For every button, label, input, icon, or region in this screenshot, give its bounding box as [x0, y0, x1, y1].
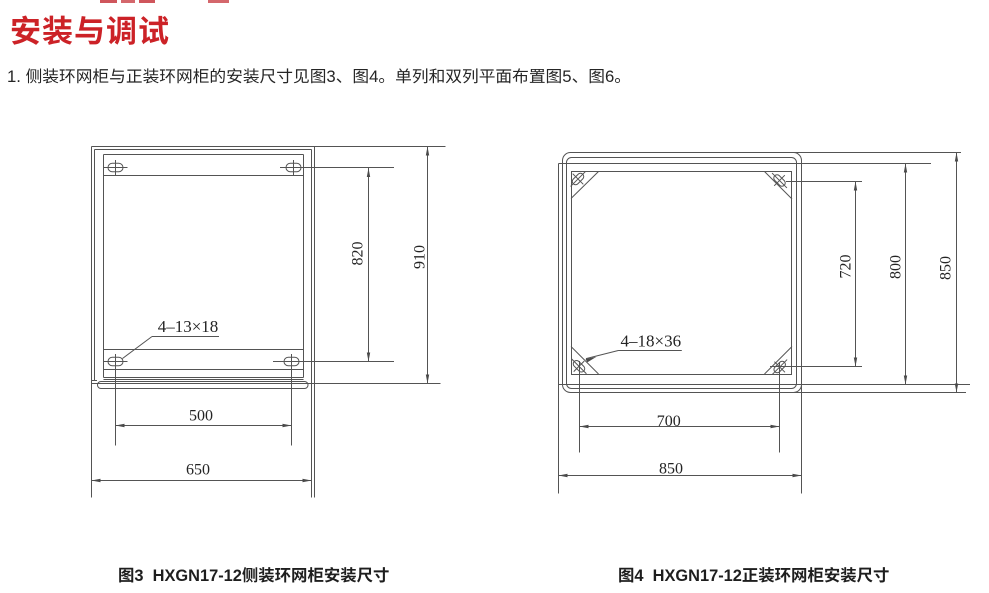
svg-text:800: 800 — [888, 255, 905, 279]
svg-text:4–18×36: 4–18×36 — [621, 332, 682, 351]
svg-text:720: 720 — [838, 255, 855, 279]
svg-text:700: 700 — [657, 413, 681, 430]
svg-text:850: 850 — [938, 256, 955, 280]
svg-text:500: 500 — [189, 408, 213, 425]
svg-text:850: 850 — [659, 461, 683, 478]
svg-text:650: 650 — [186, 462, 210, 479]
svg-text:820: 820 — [350, 242, 367, 266]
svg-text:4–13×18: 4–13×18 — [158, 317, 219, 336]
svg-text:910: 910 — [412, 245, 429, 269]
